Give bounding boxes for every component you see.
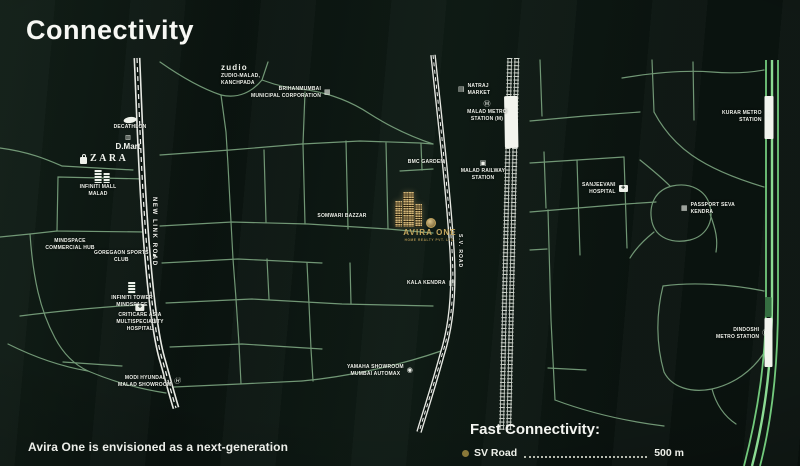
poi-natraj-market: ▤ NATRAJ MARKET — [458, 83, 490, 97]
poi-label: DECATHLON — [114, 124, 147, 131]
mall-building-icon — [94, 170, 101, 183]
dotted-leader — [524, 448, 647, 458]
poi-label: MODI HYUNDAI MALAD SHOWROOM — [118, 375, 171, 389]
avira-tagline: HOME REALTY PVT. LTD. — [395, 238, 465, 242]
poi-label: SANJEEVANI HOSPITAL — [582, 182, 616, 196]
poi-label: NATRAJ MARKET — [468, 83, 491, 97]
avira-project-name: AVIRA ONE — [395, 228, 465, 237]
poi-passport-seva-kendra: ▦ PASSPORT SEVA KENDRA — [681, 202, 735, 216]
poi-zara: ZARA — [80, 153, 128, 164]
poi-criticare-hospital: ✚ CRITICARE ASIA MULTISPECIALITY HOSPITA… — [116, 304, 163, 332]
poi-label: DINDOSHI METRO STATION — [716, 327, 759, 341]
poi-malad-railway-station: ▣ MALAD RAILWAY STATION — [461, 160, 505, 182]
poi-modi-hyundai-showroom: MODI HYUNDAI MALAD SHOWROOM Ⓗ — [118, 375, 181, 389]
poi-label: MINDSPACE COMMERCIAL HUB — [45, 238, 94, 252]
fast-connectivity-heading: Fast Connectivity: — [470, 421, 600, 438]
decathlon-logo-icon — [123, 116, 137, 124]
avira-one-marker: AVIRA ONE HOME REALTY PVT. LTD. — [395, 192, 465, 247]
building-icon: ▦ — [324, 89, 331, 96]
poi-label: SOMWARI BAZZAR — [317, 213, 366, 220]
poi-goregaon-sports-club: GOREGAON SPORTS CLUB ⚑ — [94, 250, 157, 264]
poi-dmart: ▥ D.Mart — [116, 135, 141, 151]
poi-kala-kendra: KALA KENDRA ▤ — [407, 280, 455, 287]
poi-label: PASSPORT SEVA KENDRA — [691, 202, 735, 216]
fast-connectivity-item: SV Road 500 m — [462, 447, 684, 459]
building-icon: ▦ — [681, 205, 688, 212]
poi-label: INFINITI MALL MALAD — [80, 184, 117, 198]
poi-label: GOREGAON SPORTS CLUB — [94, 250, 149, 264]
poi-zudio: zudio ZUDIO-MALAD, KANCHPADA — [221, 63, 260, 87]
hospital-icon: ✚ — [135, 304, 144, 311]
bullet-icon — [462, 450, 469, 457]
hospital-icon: ✚ — [619, 185, 628, 192]
poi-bmc-garden: BMC GARDEN — [408, 159, 444, 166]
metro-icon: Ⓜ — [765, 113, 772, 120]
hyundai-icon: Ⓗ — [174, 378, 182, 385]
railway-station-icon: ▣ — [480, 160, 487, 167]
flag-icon: ⚑ — [152, 254, 157, 260]
poi-label: CRITICARE ASIA MULTISPECIALITY HOSPITAL — [116, 312, 163, 332]
fast-connectivity-distance: 500 m — [654, 447, 684, 459]
poi-dindoshi-metro-station: DINDOSHI METRO STATION Ⓜ — [716, 327, 769, 341]
poi-mindspace-commercial-hub: MINDSPACE COMMERCIAL HUB — [45, 238, 94, 252]
poi-label: MALAD METRO STATION (M) — [467, 109, 507, 123]
poi-label: ZUDIO-MALAD, KANCHPADA — [221, 73, 260, 87]
poi-label: KALA KENDRA — [407, 280, 446, 287]
fast-connectivity-label: SV Road — [474, 447, 517, 459]
poi-malad-metro-station: Ⓜ MALAD METRO STATION (M) — [467, 101, 507, 123]
avira-building-illustration — [395, 192, 422, 227]
zara-logo: ZARA — [90, 153, 128, 164]
cart-icon: ▥ — [125, 135, 131, 141]
poi-label: BMC GARDEN — [408, 159, 444, 166]
poi-label: KURAR METRO STATION — [722, 110, 762, 124]
poi-yamaha-showroom: YAMAHA SHOWROOM MUMBAI AUTOMAX ◉ — [347, 364, 413, 378]
poi-infiniti-mall-malad: INFINITI MALL MALAD — [80, 170, 117, 198]
zudio-logo: zudio — [221, 63, 248, 72]
market-icon: ▤ — [458, 86, 465, 93]
intro-paragraph: Avira One is envisioned as a next-genera… — [28, 440, 288, 454]
metro-icon: Ⓜ — [762, 330, 769, 337]
dmart-logo: D.Mart — [116, 142, 141, 151]
yamaha-icon: ◉ — [407, 367, 413, 374]
poi-label: YAMAHA SHOWROOM MUMBAI AUTOMAX — [347, 364, 404, 378]
page-title: Connectivity — [26, 15, 194, 46]
poi-kurar-metro-station: KURAR METRO STATION Ⓜ — [722, 110, 772, 124]
poi-label: BRIHANMUMBAI MUNICIPAL CORPORATION — [251, 86, 321, 100]
shopping-bag-icon — [80, 157, 87, 164]
metro-icon: Ⓜ — [483, 101, 490, 108]
avira-logo-badge-icon — [426, 218, 436, 228]
poi-label: MALAD RAILWAY STATION — [461, 168, 505, 182]
poi-decathlon: DECATHLON — [114, 117, 147, 131]
poi-sanjeevani-hospital: SANJEEVANI HOSPITAL ✚ — [582, 182, 628, 196]
poi-somwari-bazzar: SOMWARI BAZZAR — [317, 213, 366, 220]
market-icon: ▤ — [449, 280, 456, 287]
poi-brihanmumbai-municipal-corporation: BRIHANMUMBAI MUNICIPAL CORPORATION ▦ — [251, 86, 331, 100]
tower-building-icon — [128, 282, 135, 294]
connectivity-map-slide: Connectivity NEW LINK ROAD S.V. ROAD zud… — [0, 0, 800, 466]
